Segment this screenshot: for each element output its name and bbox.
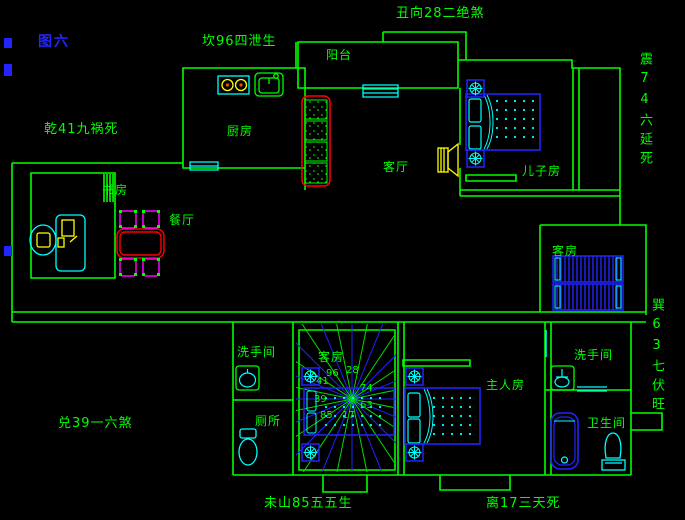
room-label-bathroom-right: 卫生间 (587, 417, 626, 429)
room-label-sons-room: 儿子房 (522, 165, 561, 177)
tv-icon (438, 144, 458, 176)
bed-guest-room-1 (553, 256, 623, 282)
luopan-number-e: 74 (360, 384, 373, 394)
room-label-living-room: 客厅 (383, 161, 409, 173)
room-label-washroom-left: 洗手间 (237, 346, 276, 358)
annotation-south: 离17三天死 (486, 497, 561, 510)
room-label-guest-room-center: 客房 (318, 351, 344, 363)
bed-sons-room (466, 94, 540, 150)
bed-master-room (405, 388, 480, 444)
room-label-kitchen: 厨房 (227, 125, 253, 137)
annotation-sitting: 未山85五五生 (264, 497, 353, 510)
dining-table-icon (117, 229, 164, 258)
room-label-study: 书房 (102, 184, 128, 196)
light-fixture-icon (467, 150, 484, 167)
luopan-number-w: 39 (314, 395, 327, 405)
bed-guest-room-2 (553, 284, 623, 310)
toilet-right-icon (602, 433, 625, 470)
washbasin-left-icon (236, 366, 259, 390)
window-balcony (363, 85, 398, 97)
annotation-north: 坎96四泄生 (202, 35, 277, 48)
luopan-number-nw: 41 (316, 377, 329, 387)
room-label-master-room: 主人房 (486, 379, 525, 391)
room-label-toilet-left: 厕所 (255, 415, 281, 427)
room-label-dining: 餐厅 (169, 214, 195, 226)
stove-icon (218, 76, 249, 94)
room-label-balcony: 阳台 (326, 49, 352, 61)
dining-chairs (119, 210, 160, 276)
figure-label: 图六 (38, 35, 70, 49)
washbasin-right-icon (551, 366, 574, 390)
toilet-left-icon (239, 429, 257, 465)
room-label-guest-room-right: 客房 (552, 245, 578, 257)
sofa-icon (302, 96, 330, 186)
light-fixture-icon (406, 444, 423, 461)
luopan-number-sw: 85 (320, 411, 333, 421)
annotation-west: 兑39一六煞 (58, 417, 133, 430)
luopan-number-s: 17 (342, 411, 355, 421)
bathtub-icon (551, 413, 578, 469)
annotation-facing: 丑向28二绝煞 (396, 7, 485, 20)
kitchen-sink-icon (255, 73, 283, 96)
light-fixture-icon (406, 368, 423, 385)
window-washroom-right (577, 387, 607, 391)
annotation-southeast: 巽63七伏旺 (650, 298, 663, 416)
luopan-number-ne: 28 (346, 366, 359, 376)
chair-study-icon (30, 225, 56, 255)
desk-icon (56, 215, 85, 271)
floor-plan: 图六 坎96四泄生 丑向28二绝煞 乾41九祸死 震74六延死 巽63七伏旺 兑… (0, 0, 685, 520)
floor-plan-drawing (0, 0, 685, 520)
annotation-east: 震74六延死 (638, 52, 651, 170)
margin-marks (4, 38, 12, 256)
room-label-washroom-right: 洗手间 (574, 349, 613, 361)
luopan-number-se: 63 (360, 401, 373, 411)
annotation-northwest: 乾41九祸死 (44, 123, 119, 136)
chair-corner-marks (119, 210, 160, 276)
